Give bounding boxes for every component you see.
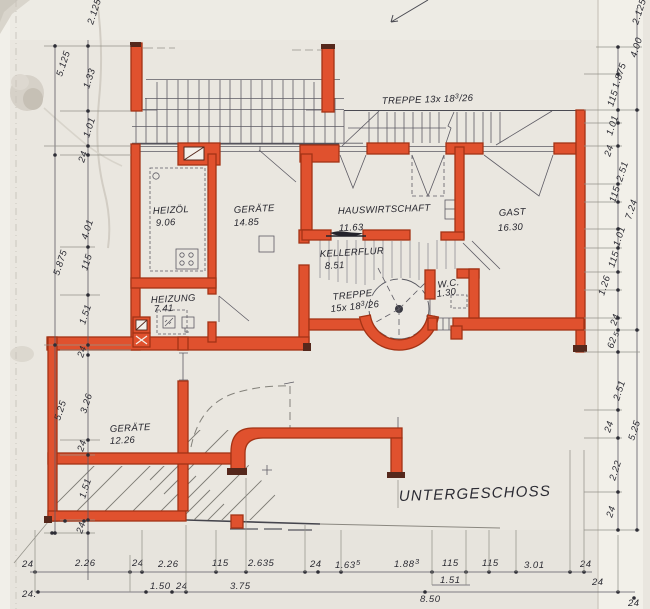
svg-text:GERÄTE: GERÄTE xyxy=(110,422,152,435)
svg-text:HEIZÖL: HEIZÖL xyxy=(153,204,190,217)
svg-text:24: 24 xyxy=(627,598,640,609)
svg-text:1.50: 1.50 xyxy=(150,581,171,592)
svg-text:115: 115 xyxy=(482,558,499,569)
svg-text:115: 115 xyxy=(442,558,459,569)
svg-text:115: 115 xyxy=(212,558,229,569)
svg-text:GAST: GAST xyxy=(499,207,527,219)
svg-text:2.26: 2.26 xyxy=(74,558,96,569)
svg-text:24: 24 xyxy=(309,559,322,570)
svg-text:3.75: 3.75 xyxy=(230,581,251,592)
svg-text:3: 3 xyxy=(415,557,420,566)
svg-text:16.30: 16.30 xyxy=(498,222,524,234)
svg-text:1.63: 1.63 xyxy=(335,560,356,571)
svg-text:1.88: 1.88 xyxy=(394,559,415,570)
svg-text:1.51: 1.51 xyxy=(440,575,461,586)
svg-text:7.41: 7.41 xyxy=(154,303,174,315)
svg-text:24: 24 xyxy=(579,559,592,570)
svg-text:5: 5 xyxy=(356,558,361,567)
svg-text:24.: 24. xyxy=(21,589,37,600)
svg-text:2.635: 2.635 xyxy=(247,558,274,569)
svg-text:14.85: 14.85 xyxy=(234,217,260,229)
svg-text:2.26: 2.26 xyxy=(157,559,179,570)
svg-text:8.50: 8.50 xyxy=(420,594,441,605)
svg-text:24: 24 xyxy=(591,577,604,588)
svg-text:12.26: 12.26 xyxy=(110,435,136,447)
svg-text:11.63: 11.63 xyxy=(339,222,364,234)
svg-text:GERÄTE: GERÄTE xyxy=(234,203,276,216)
svg-text:9.06: 9.06 xyxy=(156,217,177,229)
svg-text:24: 24 xyxy=(21,559,34,570)
svg-text:3.01: 3.01 xyxy=(524,560,545,571)
svg-text:8.51: 8.51 xyxy=(325,260,345,272)
